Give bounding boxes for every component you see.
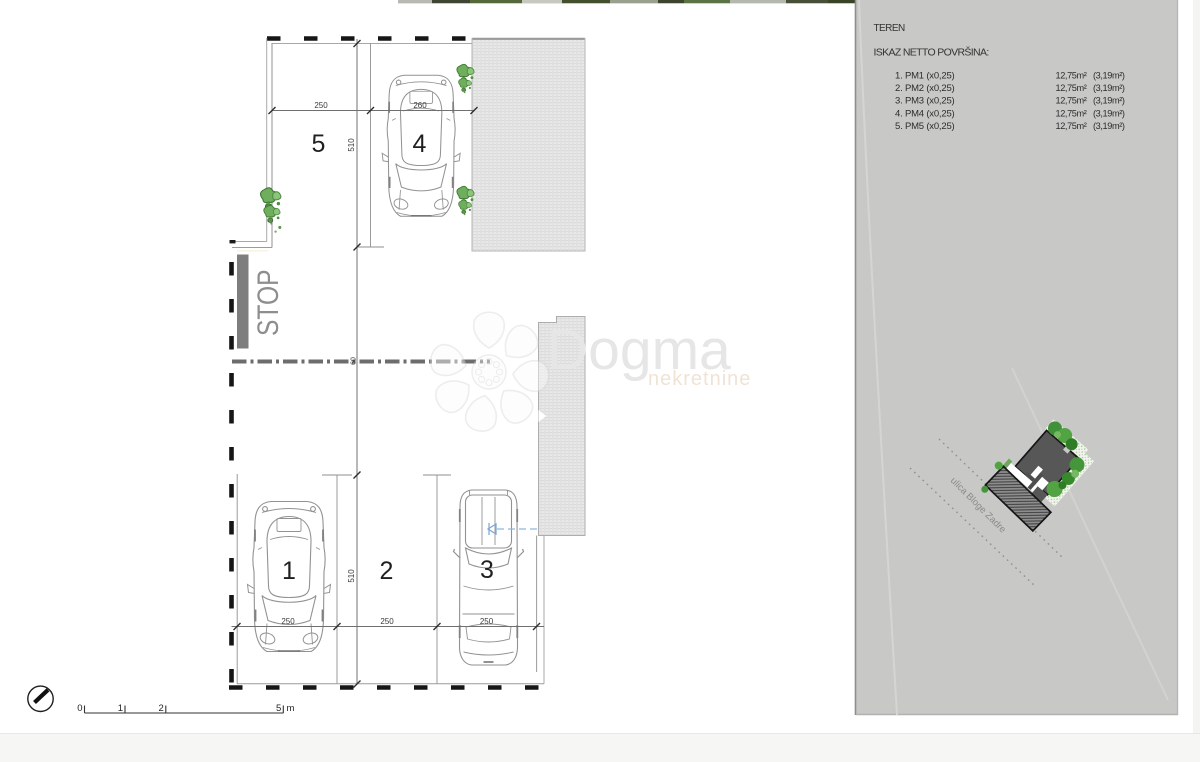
svg-text:250: 250	[380, 617, 394, 626]
svg-text:(3,19m²): (3,19m²)	[1093, 121, 1125, 131]
svg-text:12,75m²: 12,75m²	[1056, 108, 1087, 118]
svg-text:5: 5	[276, 703, 281, 714]
svg-text:m: m	[287, 703, 295, 714]
svg-text:2. PM2 (x0,25): 2. PM2 (x0,25)	[895, 83, 955, 94]
svg-text:2: 2	[159, 703, 164, 714]
svg-text:250: 250	[281, 617, 295, 626]
svg-text:12,75m²: 12,75m²	[1056, 83, 1087, 93]
svg-text:3. PM3 (x0,25): 3. PM3 (x0,25)	[895, 96, 955, 107]
svg-text:60: 60	[351, 357, 358, 365]
svg-text:510: 510	[347, 569, 356, 583]
svg-text:510: 510	[347, 138, 356, 152]
svg-text:1. PM1 (x0,25): 1. PM1 (x0,25)	[895, 71, 955, 82]
svg-text:260: 260	[413, 101, 427, 110]
svg-text:250: 250	[480, 617, 494, 626]
svg-text:5. PM5 (x0,25): 5. PM5 (x0,25)	[895, 121, 955, 132]
svg-text:ISKAZ NETTO POVRŠINA:: ISKAZ NETTO POVRŠINA:	[874, 46, 989, 59]
svg-text:nekretnine: nekretnine	[648, 368, 751, 390]
svg-text:4. PM4 (x0,25): 4. PM4 (x0,25)	[895, 108, 955, 119]
svg-text:12,75m²: 12,75m²	[1056, 71, 1087, 81]
svg-text:250: 250	[314, 101, 328, 110]
svg-text:STOP: STOP	[251, 269, 285, 336]
svg-text:0: 0	[77, 703, 82, 714]
svg-text:(3,19m²): (3,19m²)	[1093, 83, 1125, 93]
svg-text:3: 3	[480, 556, 494, 584]
svg-text:1: 1	[118, 703, 123, 714]
svg-text:(3,19m²): (3,19m²)	[1093, 108, 1125, 118]
svg-text:1: 1	[282, 557, 296, 585]
svg-text:12,75m²: 12,75m²	[1056, 121, 1087, 131]
svg-text:12,75m²: 12,75m²	[1056, 96, 1087, 106]
svg-text:2: 2	[380, 557, 394, 585]
svg-text:4: 4	[413, 130, 427, 158]
svg-text:TEREN: TEREN	[874, 23, 905, 34]
svg-text:5: 5	[312, 130, 326, 158]
svg-text:(3,19m²): (3,19m²)	[1093, 96, 1125, 106]
svg-text:(3,19m²): (3,19m²)	[1093, 71, 1125, 81]
